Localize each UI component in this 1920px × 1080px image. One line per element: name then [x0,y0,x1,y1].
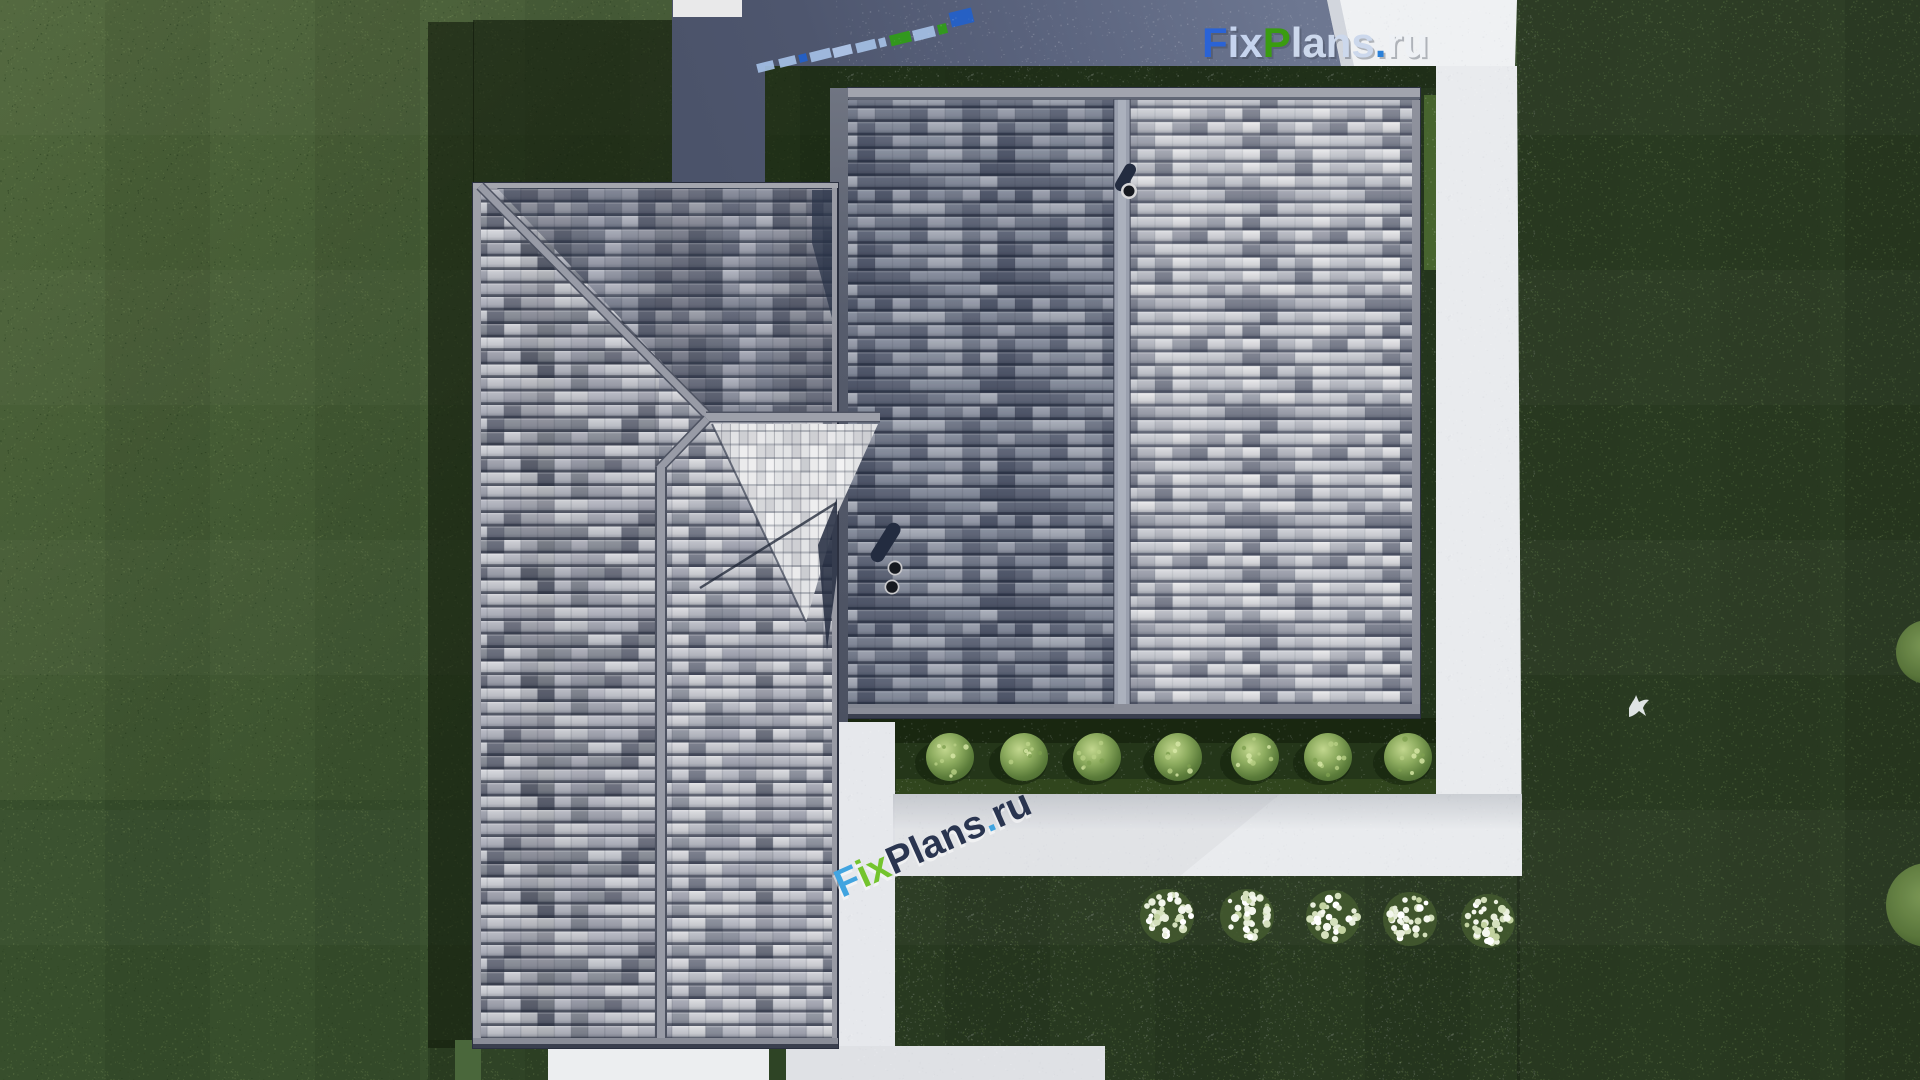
svg-text:FixPlans.ru: FixPlans.ru [1202,19,1428,66]
